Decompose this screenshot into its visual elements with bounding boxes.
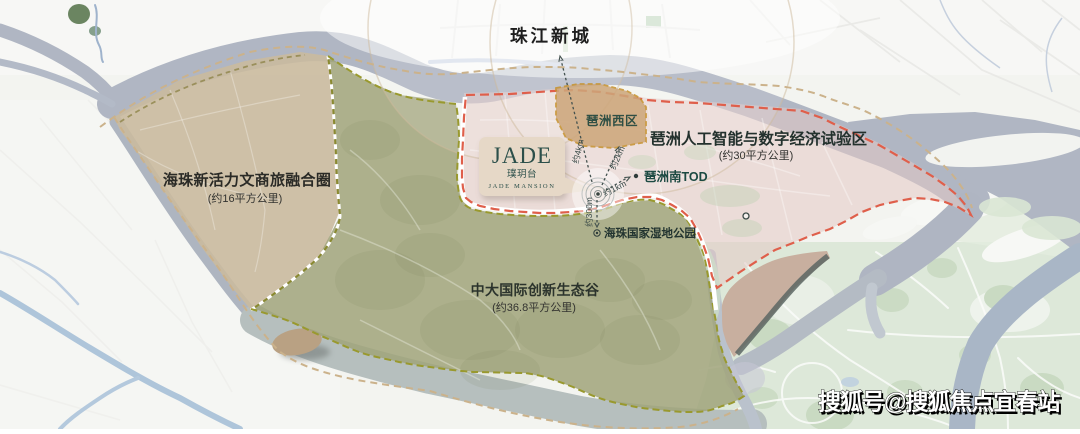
svg-text:璞玥台: 璞玥台 — [507, 168, 537, 180]
svg-text:(约36.8平方公里): (约36.8平方公里) — [492, 300, 576, 314]
svg-text:琶洲南TOD: 琶洲南TOD — [644, 169, 708, 184]
svg-text:海珠国家湿地公园: 海珠国家湿地公园 — [604, 226, 696, 240]
svg-text:海珠新活力文商旅融合圈: 海珠新活力文商旅融合圈 — [163, 171, 331, 189]
svg-text:琶洲人工智能与数字经济试验区: 琶洲人工智能与数字经济试验区 — [650, 129, 868, 148]
svg-text:(约30平方公里): (约30平方公里) — [719, 148, 794, 162]
svg-text:珠江新城: 珠江新城 — [510, 26, 592, 46]
svg-text:琶洲西区: 琶洲西区 — [586, 114, 638, 128]
svg-text:JADE: JADE — [492, 143, 552, 168]
svg-text:搜狐号@搜狐焦点宜春站: 搜狐号@搜狐焦点宜春站 — [818, 389, 1060, 415]
svg-text:JADE MANSION: JADE MANSION — [488, 183, 555, 190]
svg-text:约300m: 约300m — [584, 197, 594, 227]
svg-text:(约16平方公里): (约16平方公里) — [208, 191, 283, 205]
svg-text:中大国际创新生态谷: 中大国际创新生态谷 — [471, 282, 600, 298]
